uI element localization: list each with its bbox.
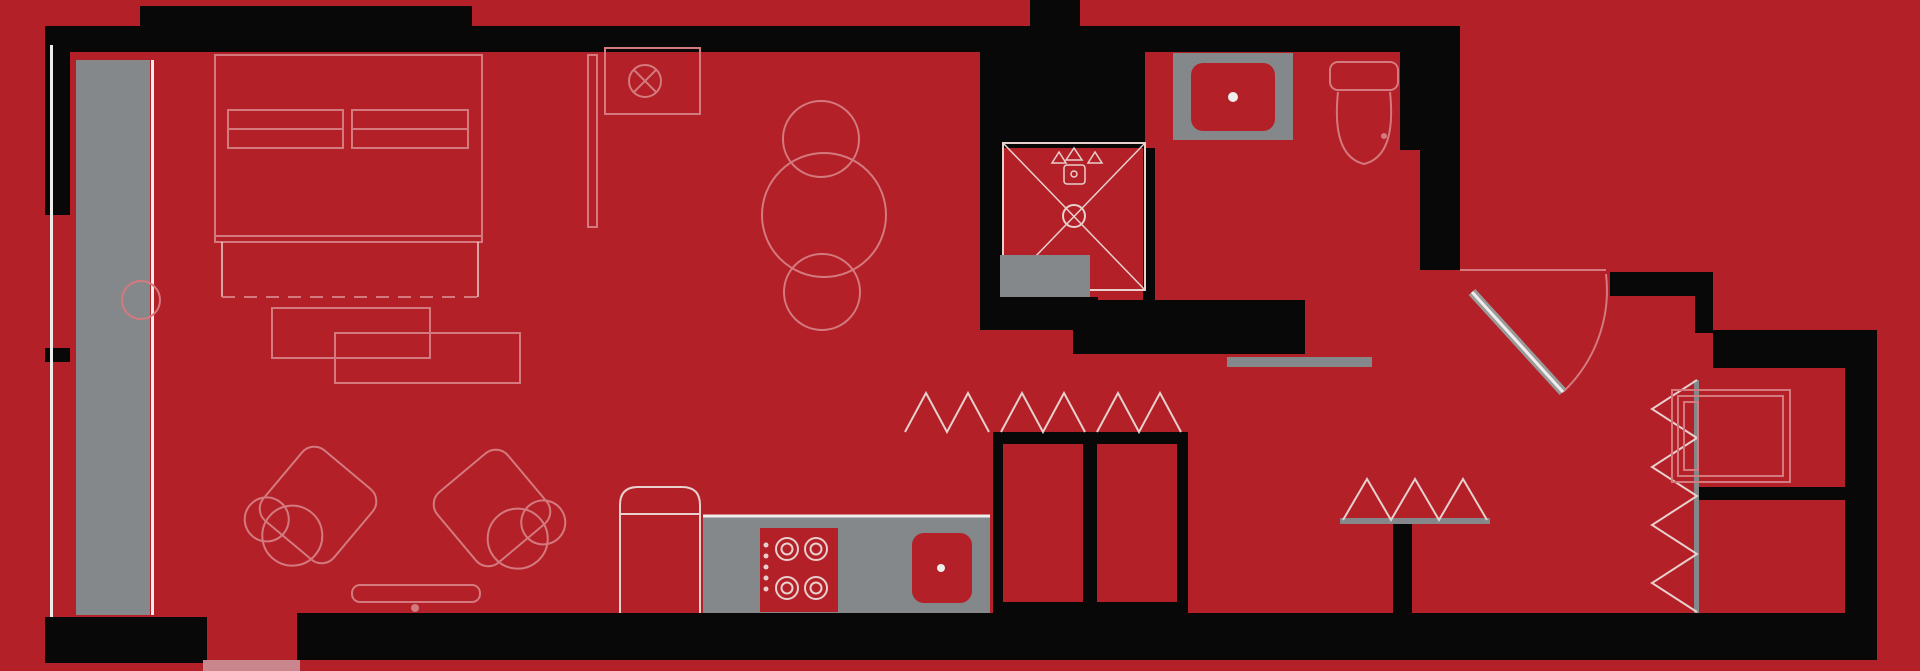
wall-small-closet-divider — [1393, 523, 1412, 613]
wall-entry-step-vertical — [1695, 272, 1713, 333]
tv-mount-dot — [411, 604, 419, 612]
wall-left-upper — [45, 26, 70, 215]
wall-top-corner-block — [140, 6, 472, 52]
wall-closet-divider-right — [1697, 487, 1845, 500]
bed — [215, 55, 482, 297]
refrigerator — [620, 487, 700, 613]
dining-chair-bottom — [784, 254, 860, 330]
washer — [1672, 390, 1790, 482]
entry-door — [1460, 270, 1607, 392]
shower-head-icon — [1052, 148, 1102, 184]
armchair-1 — [233, 436, 383, 588]
dining-chair-top — [783, 101, 859, 177]
wall-right — [1845, 368, 1877, 635]
kitchen-sink — [912, 533, 972, 603]
wall-left-pier — [45, 348, 70, 362]
fixture-box — [605, 48, 700, 114]
bifold-door-group-1 — [905, 393, 989, 432]
sink-drain — [937, 564, 945, 572]
corridor-closets — [993, 432, 1188, 613]
floor-plan-drawing — [0, 0, 1920, 671]
bathroom-sliding-door — [1227, 357, 1372, 367]
dining-table — [762, 153, 886, 277]
floor-plan — [0, 0, 1920, 671]
wall-bottom-band — [297, 613, 1877, 660]
wall-bathroom-bottom — [1073, 300, 1305, 354]
wall-bathroom-block — [980, 26, 1145, 148]
wall-entry-step-2 — [1713, 330, 1877, 368]
cooktop — [760, 528, 838, 612]
dining-set — [762, 101, 886, 330]
tv-bar — [352, 585, 480, 602]
accordion-door — [1652, 380, 1699, 613]
wall-shower-left — [980, 148, 1003, 312]
bifold-closet-doors — [905, 393, 1181, 432]
small-closet-bifold — [1343, 479, 1487, 520]
wall-bottom-left-band — [45, 617, 207, 663]
vanity-drain — [1228, 92, 1238, 102]
armchair-2 — [427, 439, 577, 591]
tv-console — [352, 585, 480, 612]
small-closet — [1340, 479, 1490, 524]
wardrobe-partition — [588, 55, 597, 227]
bifold-door-group-2 — [1001, 393, 1085, 432]
toilet-bowl — [1337, 92, 1391, 164]
shower-curb — [1000, 255, 1090, 297]
wall-bathroom-right-upper — [1400, 26, 1460, 150]
closet-cell-left — [1003, 444, 1083, 602]
closet-cell-right — [1097, 444, 1177, 602]
ceiling-fixture — [605, 48, 700, 114]
small-closet-track — [1340, 518, 1490, 524]
wall-bathroom-right-lower — [1420, 150, 1460, 270]
window-glazing — [76, 60, 150, 615]
toilet-tank — [1330, 62, 1398, 90]
window-frame-line-outer — [50, 45, 53, 617]
vanity-sink — [1173, 53, 1293, 140]
wall-top-riser — [1030, 0, 1080, 28]
toilet — [1330, 62, 1398, 164]
bifold-door-group-3 — [1097, 393, 1181, 432]
balcony-threshold — [203, 660, 300, 671]
door-swing-arc — [1563, 274, 1607, 392]
window-frame-line-inner — [151, 60, 154, 615]
